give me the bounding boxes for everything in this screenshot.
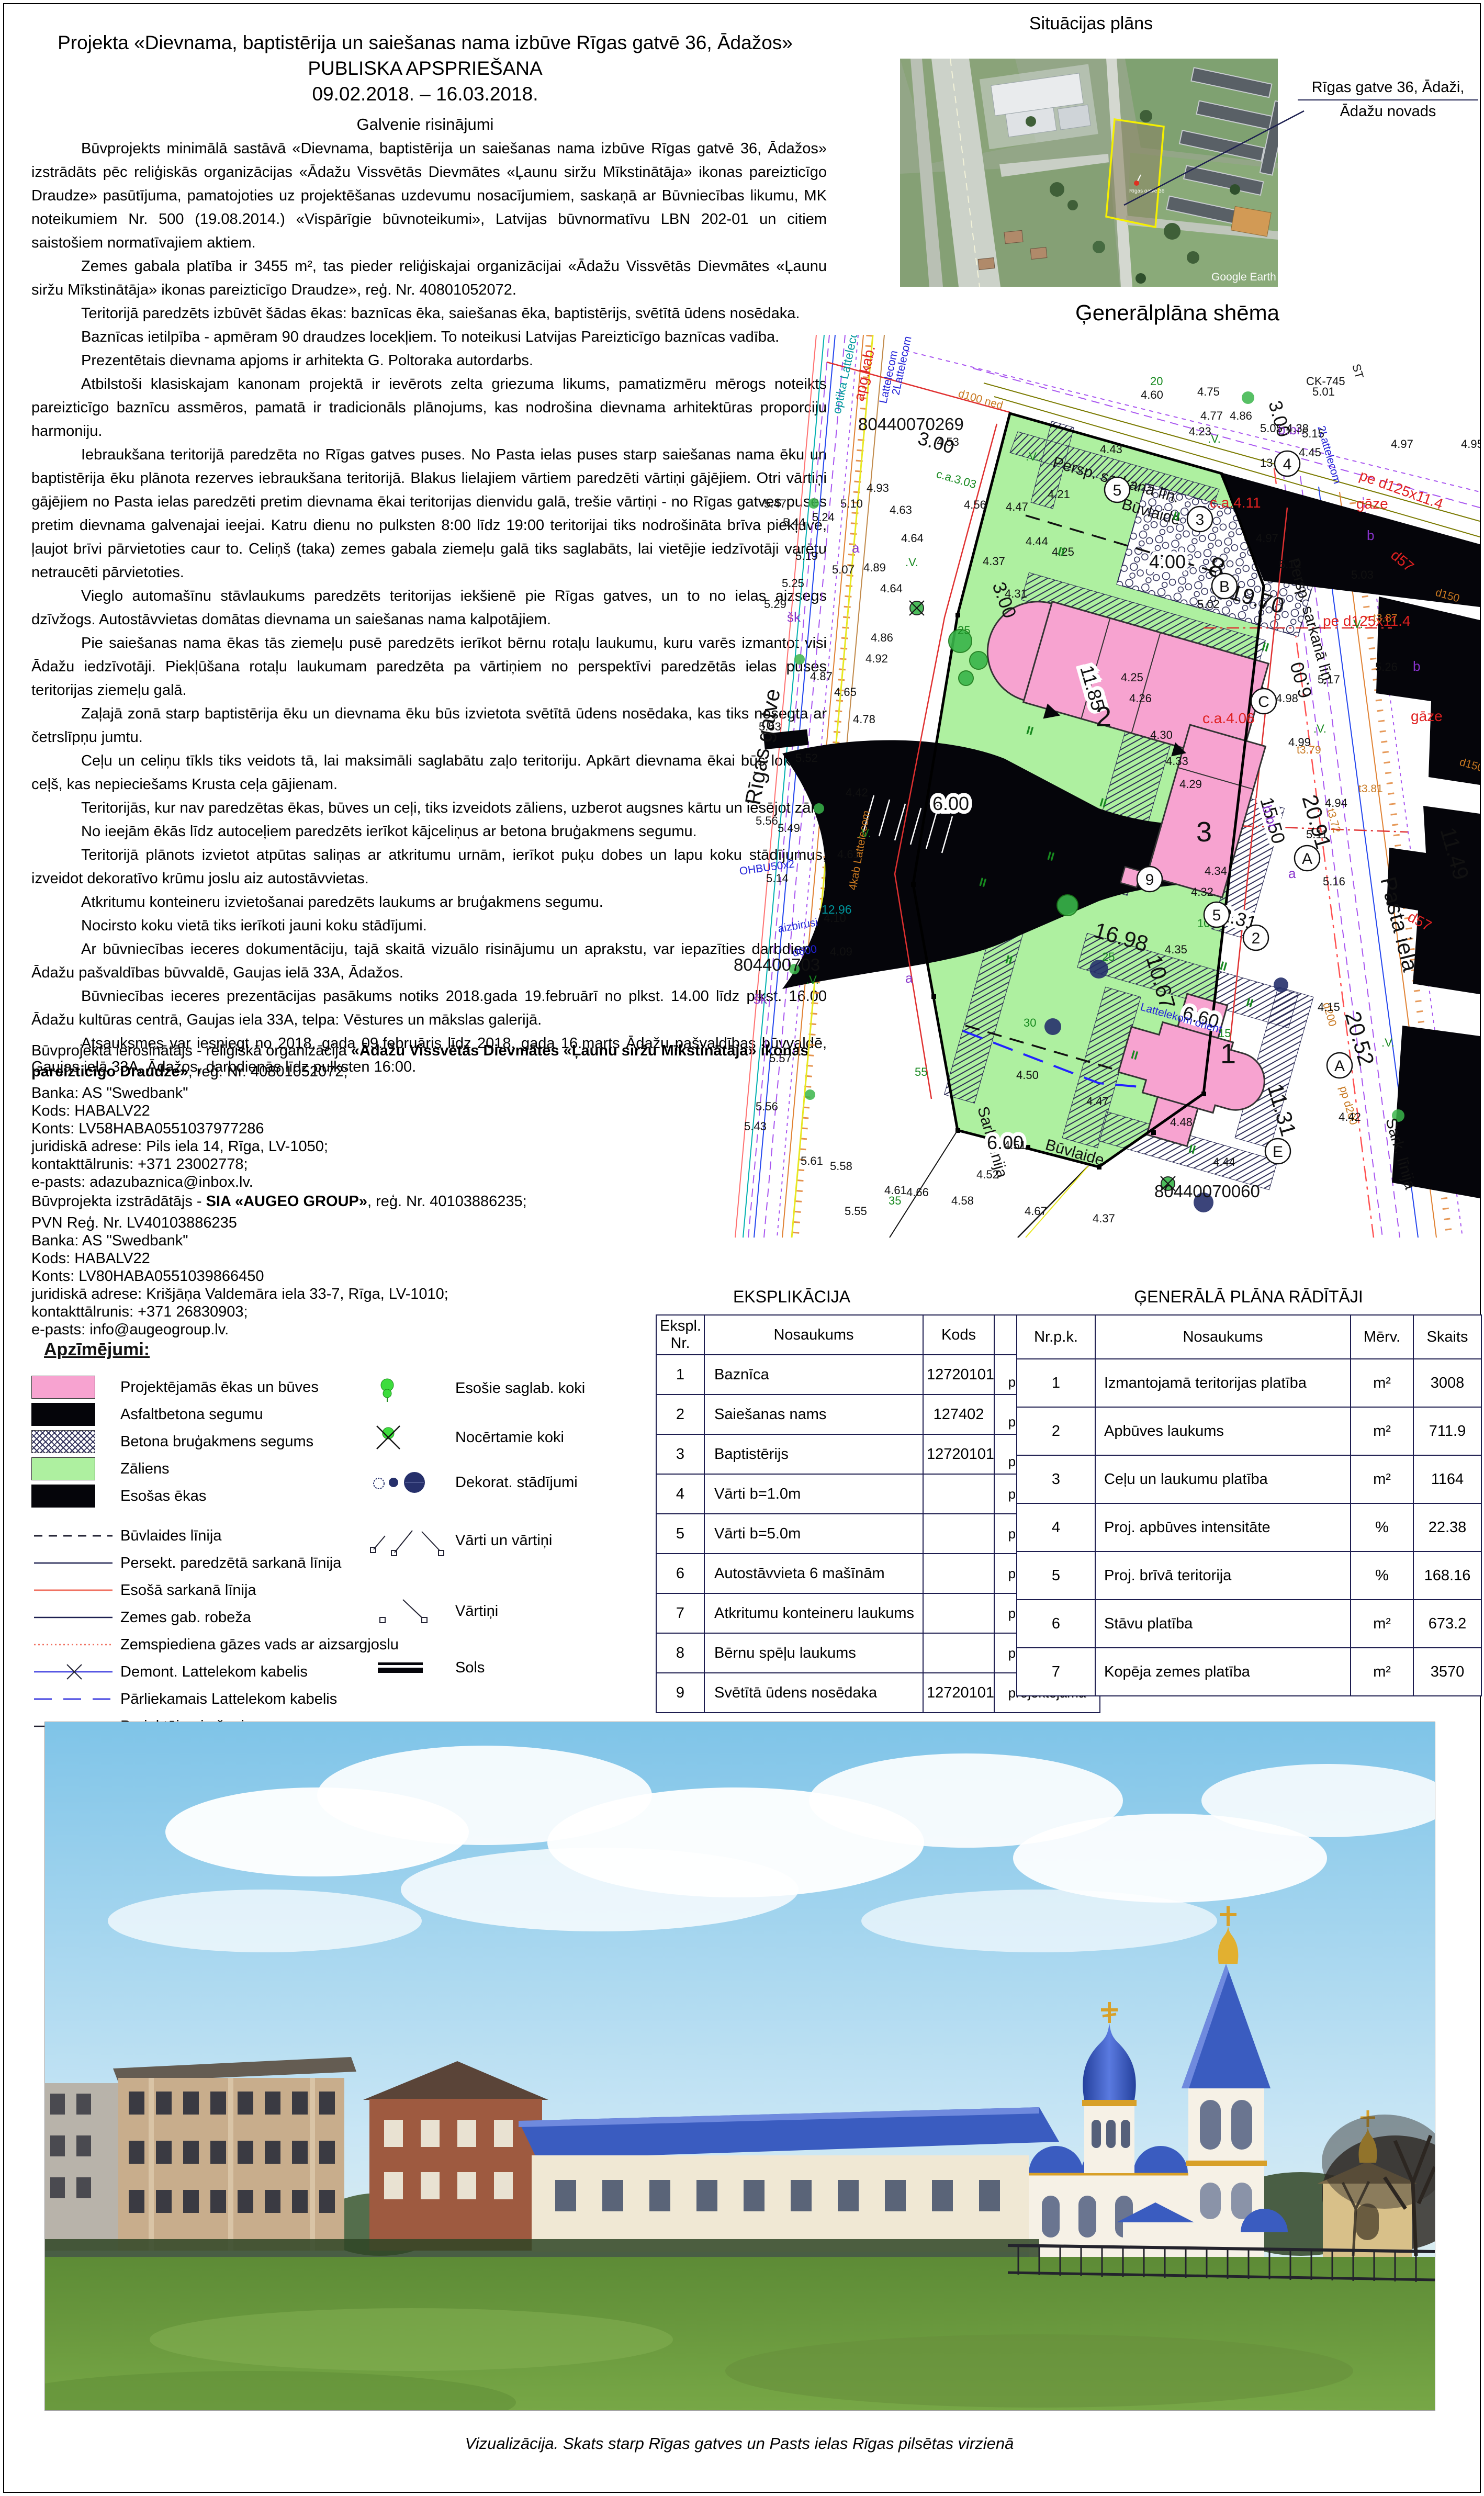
plan-label: 3	[1196, 816, 1212, 848]
table-cell: 3570	[1413, 1648, 1481, 1696]
svg-text:B: B	[1219, 578, 1230, 595]
plan-label: 5.25	[782, 577, 804, 590]
aerial-parcel-area	[1106, 119, 1164, 227]
table-cell: Svētītā ūdens nosēdaka	[704, 1673, 923, 1713]
plan-label: 35	[889, 1194, 901, 1207]
body-paragraph: Nocirsto koku vietā tiks ierīkoti jauni …	[31, 914, 827, 938]
plan-position-marker: 5	[1105, 477, 1130, 502]
body-paragraph: Baznīcas ietilpība - apmēram 90 draudzes…	[31, 325, 827, 349]
svg-text:A: A	[1302, 850, 1312, 868]
contact-line: Banka: AS "Swedbank"	[31, 1232, 832, 1250]
legend-item: Zemes gab. robeža	[31, 1604, 366, 1631]
plan-label: 4.61	[837, 848, 860, 861]
table-cell: Apbūves laukums	[1095, 1407, 1351, 1455]
plan-label: c.a.4.11	[1210, 494, 1261, 511]
plan-position-marker: 4	[1275, 451, 1300, 476]
table-cell: Saiešanas nams	[704, 1395, 923, 1434]
table-cell: m²	[1351, 1407, 1413, 1455]
table-cell: 3	[656, 1434, 704, 1474]
gates-large-icon	[366, 1522, 455, 1559]
table-cell: 3008	[1413, 1359, 1481, 1407]
plan-label: .V.	[1381, 1036, 1395, 1049]
table-cell: 22.38	[1413, 1503, 1481, 1551]
body-paragraph: Būvprojekts minimālā sastāvā «Dievnama, …	[31, 137, 827, 255]
plan-label: 4.53	[937, 435, 959, 448]
table-cell: m²	[1351, 1455, 1413, 1503]
green-fill-swatch	[31, 1457, 120, 1480]
table-cell: Baptistērijs	[704, 1434, 923, 1474]
table-row: 1Izmantojamā teritorijas platībam²3008	[1017, 1359, 1481, 1407]
subtitle: Galvenie risinājumi	[21, 114, 829, 136]
plan-label: 80440070269	[858, 414, 964, 434]
legend-item: Sols	[366, 1658, 638, 1677]
table-cell: 7	[1017, 1648, 1095, 1696]
legend-label: Persekt. paredzētā sarkanā līnija	[120, 1555, 341, 1572]
plan-label: aizbirusi	[777, 916, 819, 935]
legend-label: Zāliens	[120, 1460, 170, 1478]
plan-label: 5.52	[795, 751, 818, 764]
column-header: Kods	[923, 1315, 994, 1355]
plan-label: 4.15	[1318, 1000, 1340, 1014]
legend-item: Esošas ēkas	[31, 1482, 366, 1510]
plan-label: 4.00	[1149, 551, 1186, 572]
plan-label: 4.42	[846, 786, 868, 799]
plan-label: 4.45	[1299, 446, 1321, 459]
table-cell: 12720101	[923, 1355, 994, 1395]
plan-label: .V.	[1208, 432, 1221, 445]
plan-label: 5.24	[812, 511, 835, 524]
plan-label: 4.75	[1197, 385, 1220, 398]
plan-label: 4.93	[867, 481, 889, 494]
column-header: Mērv.	[1351, 1315, 1413, 1359]
body-paragraph: Iebraukšana teritorijā paredzēta no Rīga…	[31, 443, 827, 584]
discussion-dates: 09.02.2018. – 16.03.2018.	[21, 82, 829, 107]
plan-label: a	[1288, 865, 1296, 881]
plan-label: 4.60	[1141, 388, 1163, 401]
plan-label: 80440070060	[1154, 1182, 1260, 1201]
plan-label: 5.12	[1279, 558, 1301, 571]
table-cell: 5	[1017, 1551, 1095, 1600]
table-cell: Kopēja zemes platība	[1095, 1648, 1351, 1696]
plan-label: b	[1367, 527, 1374, 543]
legend-label: Zemes gab. robeža	[120, 1609, 251, 1626]
legend-item: Dekorat. stādījumi	[366, 1468, 638, 1497]
body-paragraph: Teritorijās, kur nav paredzētas ēkas, bū…	[31, 796, 827, 820]
visualization-photo	[44, 1722, 1435, 2411]
developer-name: SIA «AUGEO GROUP»	[206, 1193, 367, 1210]
plan-label: b	[1413, 658, 1420, 674]
plan-label: 5.03	[1351, 568, 1374, 581]
plan-label: gāze	[1411, 708, 1443, 724]
contact-line: Kods: HABALV22	[31, 1102, 832, 1120]
solid-line-swatch	[31, 1558, 120, 1568]
plan-label: 4.66	[906, 1186, 929, 1199]
plan-label: 4.64	[901, 532, 924, 545]
body-paragraph: Vieglo automašīnu stāvlaukums paredzēts …	[31, 584, 827, 632]
plan-label: 55	[915, 1065, 927, 1078]
legend-item: Zemspiediena gāzes vads ar aizsargjoslu	[31, 1631, 366, 1658]
plan-label: 4.29	[1179, 778, 1202, 791]
plan-label: 4.51	[1004, 1139, 1026, 1152]
legend-item: Persekt. paredzētā sarkanā līnija	[31, 1549, 366, 1577]
plan-label: 5.44	[783, 516, 805, 529]
column-header: Skaits	[1413, 1315, 1481, 1359]
table-cell: Izmantojamā teritorijas platība	[1095, 1359, 1351, 1407]
table-row: 3Ceļu un laukumu platībam²1164	[1017, 1455, 1481, 1503]
aerial-pin-label: Rīgas gatve 36	[1129, 188, 1165, 194]
plan-label: 4.47	[1006, 500, 1028, 513]
developer-pre: Būvprojekta izstrādātājs -	[31, 1193, 206, 1210]
plan-label: gāze	[1356, 496, 1388, 512]
table-cell: 12720101	[923, 1673, 994, 1713]
plan-position-marker: B	[1212, 574, 1237, 599]
table-cell: m²	[1351, 1359, 1413, 1407]
plan-label: 4.44	[1213, 1155, 1235, 1168]
plan-label: 5.14	[766, 872, 789, 885]
plan-label: 5.56	[756, 1100, 778, 1113]
legend-item: Pārliekamais Lattelekom kabelis	[31, 1685, 366, 1713]
table-cell	[923, 1514, 994, 1554]
plan-label: 4.31	[1005, 587, 1027, 600]
tree-green-icon	[366, 1374, 455, 1403]
plan-label: 4.58	[951, 1194, 974, 1207]
table-cell: 2	[656, 1395, 704, 1434]
table-cell: 6	[656, 1554, 704, 1593]
plan-label: d100 ned	[957, 388, 1005, 412]
plan-label: 4.78	[853, 713, 875, 726]
plan-label: 5.57	[769, 1052, 792, 1065]
plan-label: 5.43	[744, 1120, 767, 1133]
plan-label: 5.16	[1323, 875, 1345, 888]
table-cell: 3	[1017, 1455, 1095, 1503]
plan-label: 5.49	[778, 822, 800, 835]
plan-label: 4.44	[1026, 535, 1048, 548]
plan-label: 4.50	[1016, 1069, 1039, 1082]
table-cell: m²	[1351, 1600, 1413, 1648]
plan-label: .V.	[1313, 722, 1326, 735]
initiator-contact-block: Būvprojekta ierosinātājs - reliģiskā org…	[31, 1040, 832, 1191]
plan-label: 15	[1218, 1027, 1231, 1040]
table-row: 6Stāvu platībam²673.2	[1017, 1600, 1481, 1648]
contact-line: Kods: HABALV22	[31, 1250, 832, 1267]
plan-label: 4.92	[865, 652, 888, 665]
plan-label: 25	[1102, 950, 1115, 963]
public-discussion-title: PUBLISKA APSPRIEŠANA	[21, 56, 829, 82]
developer-reg: , reģ. Nr. 40103886235;	[367, 1193, 527, 1210]
apartment-building	[113, 2057, 356, 2251]
plan-label: 4.37	[1093, 1212, 1115, 1225]
legend-label: Nocērtamie koki	[455, 1429, 564, 1446]
plan-label: 5.02	[1197, 598, 1220, 611]
table-cell	[923, 1593, 994, 1633]
plan-label: šk	[754, 991, 768, 1007]
contact-line: e-pasts: adazubaznica@inbox.lv.	[31, 1173, 832, 1191]
svg-text:3: 3	[1196, 511, 1205, 529]
plan-label: 5.56	[756, 814, 778, 827]
table-cell	[923, 1554, 994, 1593]
hatch-fill-swatch	[31, 1430, 120, 1453]
google-earth-watermark: Google Earth	[1211, 271, 1276, 283]
plan-position-marker: A	[1327, 1053, 1352, 1078]
parish-hall-building	[519, 2107, 1059, 2252]
plan-label: 4.26	[1129, 692, 1152, 705]
plan-label: 5.26	[1375, 660, 1398, 673]
column-header: Ekspl. Nr.	[656, 1315, 704, 1355]
genplan-table-title: ĢENERĀLĀ PLĀNA RĀDĪTĀJI	[1016, 1287, 1481, 1307]
plan-label: 5.47	[764, 497, 786, 510]
body-paragraph: Pie saiešanas nama ēkas tās ziemeļu pusē…	[31, 632, 827, 702]
svg-text:9: 9	[1145, 871, 1154, 889]
table-cell: 1164	[1413, 1455, 1481, 1503]
svg-text:A: A	[1334, 1058, 1345, 1075]
legend-item: Vārti un vārtiņi	[366, 1522, 638, 1559]
plan-label: 5.53	[759, 720, 781, 733]
svg-text:5: 5	[1212, 907, 1221, 924]
column-header: Nosaukums	[1095, 1315, 1351, 1359]
plan-label: 4.52	[976, 1168, 999, 1181]
initiator-reg: , reģ. Nr. 40801052072;	[188, 1063, 348, 1080]
legend-label: Dekorat. stādījumi	[455, 1474, 578, 1491]
table-cell: m²	[1351, 1648, 1413, 1696]
contact-line: juridiskā adrese: Pils iela 14, Rīga, LV…	[31, 1138, 832, 1155]
plan-label: 4.63	[890, 503, 912, 516]
table-cell: 4	[656, 1474, 704, 1514]
legend-item: Zāliens	[31, 1455, 366, 1482]
legend-title: Apzīmējumi:	[44, 1340, 654, 1360]
aerial-location-pin	[1134, 181, 1139, 186]
plan-label: 4.97	[1256, 532, 1278, 545]
body-paragraph: Būvniecības ieceres prezentācijas pasāku…	[31, 985, 827, 1032]
body-paragraph: Atkritumu konteineru izvietošanai paredz…	[31, 891, 827, 914]
plan-label: c.a.3.03	[935, 467, 978, 491]
plan-label: 4.89	[863, 561, 886, 574]
plan-label: ST	[1350, 362, 1366, 380]
table-cell: Ceļu un laukumu platība	[1095, 1455, 1351, 1503]
plan-label: 4.21	[1048, 488, 1070, 501]
table-cell: 5	[656, 1514, 704, 1554]
legend-item: Būvlaides līnija	[31, 1522, 366, 1549]
table-cell: Proj. apbūves intensitāte	[1095, 1503, 1351, 1551]
legend-label: Būvlaides līnija	[120, 1527, 221, 1545]
photo-caption: Vizualizācija. Skats starp Rīgas gatves …	[44, 2434, 1434, 2453]
plan-label: 4.95	[1461, 437, 1480, 451]
plan-label: 4.47	[1086, 1095, 1109, 1108]
table-cell: 1	[656, 1355, 704, 1395]
plan-label: 804400703	[734, 955, 820, 974]
legend-item: Vārtiņi	[366, 1595, 638, 1627]
plan-position-marker: 2	[1243, 925, 1268, 950]
legend-label: Asfaltbetona segumu	[120, 1406, 263, 1423]
table-cell: 2	[1017, 1407, 1095, 1455]
plan-label: 4.86	[1230, 409, 1252, 422]
plan-label: 4.94	[1325, 796, 1347, 809]
legend-label: Demont. Lattelekom kabelis	[120, 1663, 308, 1681]
table-cell: 9	[656, 1673, 704, 1713]
table-cell: Autostāvvieta 6 mašīnām	[704, 1554, 923, 1593]
plan-label: 5.55	[845, 1205, 867, 1218]
plan-label: 4.30	[1150, 728, 1173, 741]
plan-label: 4.65	[834, 685, 857, 699]
plan-label: .V.	[905, 556, 918, 569]
svg-text:E: E	[1273, 1143, 1283, 1161]
svg-text:C: C	[1258, 693, 1269, 711]
plan-label: 1	[1220, 1038, 1236, 1070]
table-cell: 168.16	[1413, 1551, 1481, 1600]
table-cell: Vārti b=1.0m	[704, 1474, 923, 1514]
plan-label: .V.	[806, 973, 819, 986]
genplan-title: Ģenerālplāna shēma	[1020, 300, 1334, 325]
general-plan-drawing: Rīgas gatvePasta iela8044007026980440070…	[733, 335, 1480, 1238]
project-title: Projekta «Dievnama, baptistērija un saie…	[21, 30, 829, 56]
table-cell: 127402	[923, 1395, 994, 1434]
plan-label: 5.19	[795, 549, 818, 563]
table-cell: Baznīca	[704, 1355, 923, 1395]
plan-label: 4.99	[1288, 736, 1311, 749]
table-row: 5Proj. brīvā teritorija%168.16	[1017, 1551, 1481, 1600]
legend-label: Projektējamās ēkas un būves	[120, 1379, 319, 1396]
genplan-indicators-table: Nr.p.k.NosaukumsMērv.Skaits1Izmantojamā …	[1016, 1314, 1482, 1696]
contact-line: Konts: LV80HABA0551039866450	[31, 1267, 832, 1285]
plan-label: 6.00	[932, 793, 969, 814]
table-cell: %	[1351, 1551, 1413, 1600]
plan-label: 4.09	[830, 945, 852, 958]
plan-label: 4.25	[1121, 671, 1143, 684]
plan-label: 4.64	[880, 582, 903, 595]
plan-label: 5.05	[1260, 422, 1283, 435]
legend-item: Betona bruģakmens segums	[31, 1428, 366, 1455]
svg-text:5: 5	[1113, 482, 1122, 499]
plan-label: 5.01	[1312, 385, 1335, 398]
pink-fill-swatch	[31, 1376, 120, 1399]
brick-building	[363, 2061, 548, 2251]
plan-label: a	[852, 540, 860, 556]
plan-label: t3.87	[1373, 612, 1398, 624]
legend: Apzīmējumi: Projektējamās ēkas un būvesA…	[31, 1340, 654, 1740]
body-paragraph: Ar būvniecības ieceres dokumentāciju, ta…	[31, 938, 827, 985]
legend-label: Vārtiņi	[455, 1603, 498, 1620]
plan-label: c.a.4.06	[1202, 710, 1255, 726]
plan-label: 4.97	[1391, 437, 1413, 451]
table-cell: Proj. brīvā teritorija	[1095, 1551, 1351, 1600]
plan-label: 30	[1024, 1016, 1036, 1029]
column-header: Nosaukums	[704, 1315, 923, 1355]
svg-text:2: 2	[1252, 930, 1261, 947]
plan-position-marker: C	[1251, 689, 1276, 714]
table-cell: 6	[1017, 1600, 1095, 1648]
body-paragraph: Zaļajā zonā starp baptistērija ēku un di…	[31, 702, 827, 749]
plan-label: .V.	[1026, 450, 1039, 463]
plan-label: 20	[1150, 375, 1163, 388]
plan-label: .V.	[858, 827, 871, 840]
legend-label: Esošā sarkanā līnija	[120, 1582, 256, 1599]
table-cell	[923, 1474, 994, 1514]
plan-label: 4.56	[964, 498, 986, 511]
left-grey-building	[45, 2083, 123, 2251]
body-paragraph: Atbilstoši klasiskajam kanonam projektā …	[31, 373, 827, 443]
table-row: 4Proj. apbūves intensitāte%22.38	[1017, 1503, 1481, 1551]
plan-label: 5.15	[1302, 427, 1324, 440]
table-cell: 1	[1017, 1359, 1095, 1407]
legend-label: Betona bruģakmens segums	[120, 1433, 313, 1451]
explication-table-title: EKSPLIKĀCIJA	[656, 1287, 928, 1307]
legend-label: Sols	[455, 1659, 485, 1677]
situation-plan-aerial-image: Rīgas gatve 36 Google Earth	[900, 59, 1278, 287]
plan-label: 4.87	[810, 670, 833, 683]
black-fill-swatch	[31, 1485, 120, 1508]
plan-label: 4.35	[1165, 943, 1187, 956]
table-cell: Bērnu spēļu laukums	[704, 1633, 923, 1673]
plan-label: 5.07	[832, 563, 855, 576]
svg-text:4: 4	[1283, 456, 1292, 473]
plan-position-marker: 3	[1187, 507, 1212, 532]
plan-position-marker: A	[1295, 846, 1320, 871]
plan-label: 5.17	[1318, 673, 1340, 686]
red-line-swatch	[31, 1585, 120, 1595]
plan-label: 5.11	[1306, 828, 1328, 841]
initiator-pre: Būvprojekta ierosinātājs - reliģiskā org…	[31, 1042, 351, 1059]
body-paragraph: No ieejām ēkās līdz autoceļiem paredzēts…	[31, 820, 827, 844]
contact-line: Banka: AS "Swedbank"	[31, 1084, 832, 1102]
plan-label: a	[905, 970, 913, 986]
plan-label: 13	[1260, 456, 1273, 469]
contact-line: PVN Reģ. Nr. LV40103886235	[31, 1214, 832, 1232]
plan-label: 4.43	[1100, 443, 1122, 456]
plan-label: 5.29	[764, 598, 786, 611]
legend-label: Esošas ēkas	[120, 1488, 206, 1505]
plan-label: 5.58	[830, 1160, 852, 1173]
contact-line: kontakttālrunis: +371 23002778;	[31, 1155, 832, 1173]
situation-plan-title: Situācijas plāns	[905, 14, 1277, 34]
table-cell: 12720101	[923, 1434, 994, 1474]
table-cell: Vārti b=5.0m	[704, 1514, 923, 1554]
dash-line-swatch	[31, 1531, 120, 1541]
body-paragraph: Prezentētais dievnama apjoms ir arhitekt…	[31, 349, 827, 373]
shrubs-icon	[366, 1468, 455, 1497]
plan-label: 2	[1096, 701, 1111, 733]
address-line-1: Rīgas gatve 36, Ādaži,	[1298, 76, 1478, 100]
plan-label: 4.86	[871, 631, 893, 644]
contact-line: Konts: LV58HABA0551037977286	[31, 1120, 832, 1138]
plan-label: šk	[787, 609, 801, 625]
table-cell: 673.2	[1413, 1600, 1481, 1648]
tree-cut-icon	[366, 1423, 455, 1452]
black-fill-swatch	[31, 1403, 120, 1426]
table-cell: Atkritumu konteineru laukums	[704, 1593, 923, 1633]
plan-label: .V.	[1350, 617, 1363, 631]
table-cell: 4	[1017, 1503, 1095, 1551]
red-dotted-swatch	[31, 1639, 120, 1650]
legend-label: Esošie saglab. koki	[455, 1380, 585, 1397]
legend-item: Asfaltbetona segumu	[31, 1401, 366, 1428]
developer-intro: Būvprojekta izstrādātājs - SIA «AUGEO GR…	[31, 1191, 832, 1212]
table-cell: 711.9	[1413, 1407, 1481, 1455]
main-description-text: Būvprojekts minimālā sastāvā «Dievnama, …	[31, 137, 827, 1079]
legend-item: Nocērtamie koki	[366, 1423, 638, 1452]
plan-label: 4.10	[824, 912, 846, 925]
body-paragraph: Teritorijā plānots izvietot atpūtas sali…	[31, 844, 827, 891]
plan-label: 4.34	[1205, 864, 1227, 878]
body-paragraph: Teritorijā paredzēts izbūvēt šādas ēkas:…	[31, 302, 827, 325]
plan-label: 5.10	[840, 497, 863, 510]
solid-line-swatch	[31, 1612, 120, 1623]
table-cell: Stāvu platība	[1095, 1600, 1351, 1648]
legend-label: Zemspiediena gāzes vads ar aizsargjoslu	[120, 1636, 399, 1654]
plan-position-marker: 9	[1137, 867, 1162, 892]
plan-position-marker: 5	[1204, 902, 1229, 927]
plan-label: 4.98	[1276, 692, 1298, 705]
initiator-intro: Būvprojekta ierosinātājs - reliģiskā org…	[31, 1040, 832, 1082]
column-header: Nr.p.k.	[1017, 1315, 1095, 1359]
